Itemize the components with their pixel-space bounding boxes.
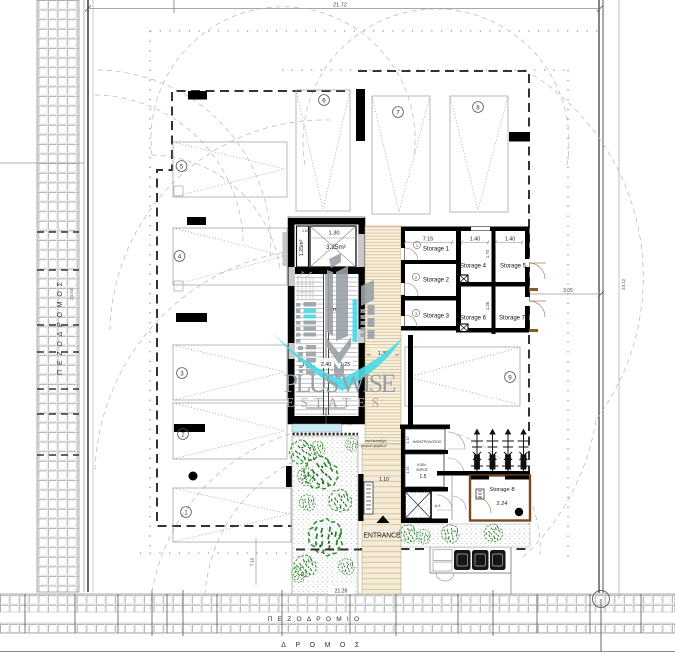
svg-text:ΧΩΡΟΣ: ΧΩΡΟΣ <box>416 468 428 472</box>
svg-text:3: 3 <box>180 370 184 377</box>
svg-text:2.24: 2.24 <box>497 501 508 507</box>
svg-text:7.10: 7.10 <box>250 557 255 566</box>
svg-text:Storage 7: Storage 7 <box>499 316 526 322</box>
svg-text:1.30: 1.30 <box>329 231 340 237</box>
svg-text:1.40: 1.40 <box>505 237 516 243</box>
svg-text:Storage 1: Storage 1 <box>423 247 450 253</box>
svg-text:PLUS WISE: PLUS WISE <box>284 369 397 398</box>
svg-text:ESTATES: ESTATES <box>286 395 386 410</box>
svg-text:Δ.Χ.: Δ.Χ. <box>435 504 442 508</box>
svg-text:3.25m²: 3.25m² <box>326 244 346 251</box>
svg-text:1.10: 1.10 <box>406 437 410 444</box>
svg-text:ΗΛΕΚΤΡΟΛΟΓΕΙΟ: ΗΛΕΚΤΡΟΛΟΓΕΙΟ <box>413 440 442 444</box>
svg-text:1.40: 1.40 <box>470 237 481 243</box>
svg-text:4: 4 <box>178 253 182 260</box>
svg-text:24.93: 24.93 <box>69 288 74 300</box>
svg-text:Storage 2: Storage 2 <box>423 278 450 284</box>
svg-text:μικρών φορτίων: μικρών φορτίων <box>361 444 387 448</box>
svg-text:ENTRANCE: ENTRANCE <box>364 531 401 540</box>
svg-text:9: 9 <box>508 374 512 381</box>
svg-text:Storage 4: Storage 4 <box>460 264 487 270</box>
svg-text:ανελκυστ(ήρ): ανελκυστ(ήρ) <box>365 439 386 443</box>
svg-text:1.70: 1.70 <box>485 249 490 258</box>
svg-text:5: 5 <box>180 163 184 170</box>
svg-text:1: 1 <box>184 509 188 516</box>
svg-text:7: 7 <box>396 109 400 116</box>
svg-text:6: 6 <box>322 97 326 104</box>
svg-text:1.63: 1.63 <box>302 229 309 233</box>
svg-text:1.25m²: 1.25m² <box>299 239 305 256</box>
svg-text:23.12: 23.12 <box>621 278 626 290</box>
svg-text:7.15: 7.15 <box>423 237 434 243</box>
svg-text:ΚΟΙΝ.: ΚΟΙΝ. <box>417 463 426 467</box>
svg-text:Storage 3: Storage 3 <box>423 314 450 320</box>
svg-text:2.40: 2.40 <box>321 362 332 368</box>
svg-text:8: 8 <box>476 104 480 111</box>
svg-text:1.35: 1.35 <box>485 301 490 310</box>
svg-text:1.45: 1.45 <box>406 467 410 474</box>
svg-text:ΠΕΖΟΔΡΟΜΟΣ: ΠΕΖΟΔΡΟΜΟΣ <box>57 277 64 375</box>
svg-text:2: 2 <box>181 431 185 438</box>
svg-text:1.10: 1.10 <box>379 477 389 483</box>
svg-text:ΔΡΟΜΟΣ: ΔΡΟΜΟΣ <box>281 642 368 649</box>
svg-text:Storage 5: Storage 5 <box>500 264 527 270</box>
svg-text:1.5: 1.5 <box>420 474 427 480</box>
svg-text:21.28: 21.28 <box>335 589 348 595</box>
svg-text:21.72: 21.72 <box>333 3 347 9</box>
svg-text:Storage 8: Storage 8 <box>489 487 514 493</box>
svg-text:Storage 6: Storage 6 <box>460 316 487 322</box>
